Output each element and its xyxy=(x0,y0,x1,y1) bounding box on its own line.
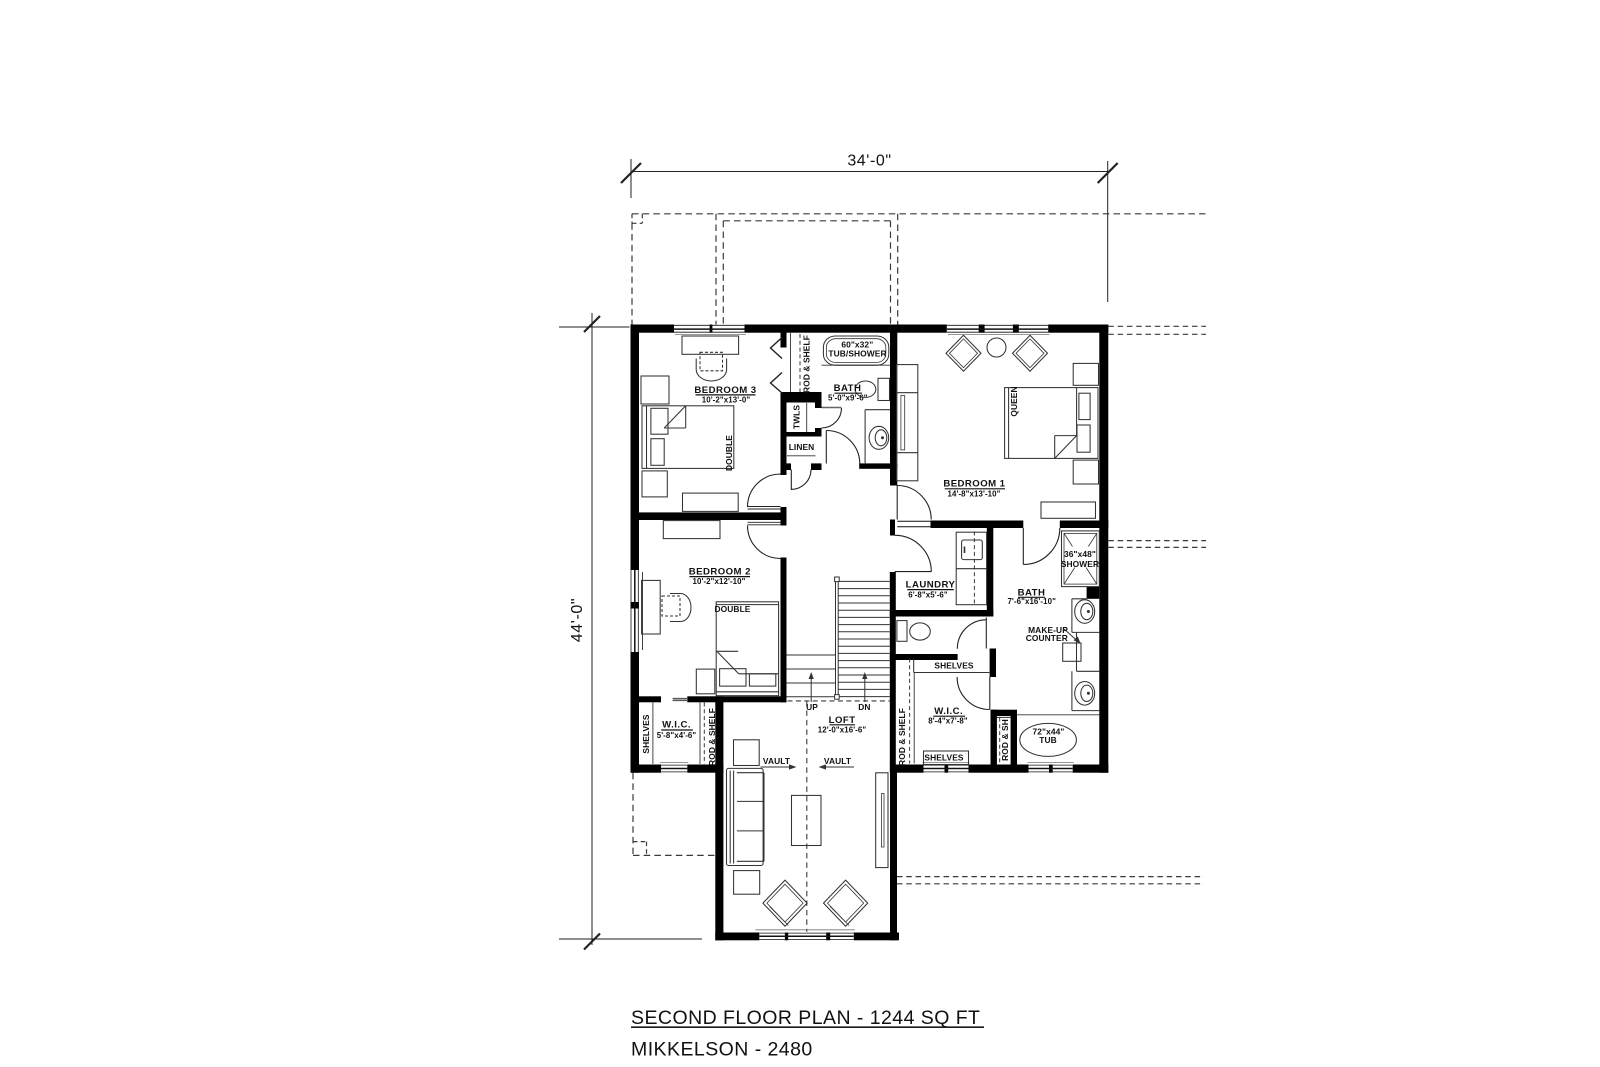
svg-text:DN: DN xyxy=(858,702,870,712)
svg-text:W.I.C.: W.I.C. xyxy=(662,720,691,731)
svg-text:SHELVES: SHELVES xyxy=(924,753,963,763)
svg-text:10'-2"x12'-10": 10'-2"x12'-10" xyxy=(693,577,746,586)
svg-text:5'-0"x9'-6": 5'-0"x9'-6" xyxy=(828,394,868,403)
svg-text:SHOWER: SHOWER xyxy=(1061,559,1099,569)
svg-text:TWLS: TWLS xyxy=(792,405,802,429)
svg-text:VAULT: VAULT xyxy=(763,756,791,766)
svg-text:UP: UP xyxy=(806,702,818,712)
svg-text:DOUBLE: DOUBLE xyxy=(715,604,751,614)
svg-text:ROD & SHELF: ROD & SHELF xyxy=(802,335,812,393)
svg-text:TUB/SHOWER: TUB/SHOWER xyxy=(828,349,886,359)
svg-text:VAULT: VAULT xyxy=(824,756,852,766)
svg-text:36"x48": 36"x48" xyxy=(1064,549,1096,559)
svg-text:10'-2"x13'-0": 10'-2"x13'-0" xyxy=(702,396,751,405)
svg-text:ROD & SHELF: ROD & SHELF xyxy=(707,708,717,766)
svg-text:SHELVES: SHELVES xyxy=(934,660,973,670)
svg-text:8'-4"x7'-8": 8'-4"x7'-8" xyxy=(928,716,968,725)
svg-text:LAUNDRY: LAUNDRY xyxy=(906,580,956,591)
svg-text:COUNTER: COUNTER xyxy=(1026,633,1068,643)
svg-text:34'-0": 34'-0" xyxy=(847,153,891,170)
svg-text:LINEN: LINEN xyxy=(789,442,815,452)
svg-text:14'-8"x13'-10": 14'-8"x13'-10" xyxy=(948,490,1001,499)
svg-text:QUEEN: QUEEN xyxy=(1009,386,1019,416)
svg-text:TUB: TUB xyxy=(1039,735,1057,745)
svg-text:SECOND FLOOR PLAN - 1244 SQ FT: SECOND FLOOR PLAN - 1244 SQ FT xyxy=(631,1007,980,1029)
svg-text:6'-8"x5'-6": 6'-8"x5'-6" xyxy=(908,591,948,600)
svg-text:ROD & SHELF: ROD & SHELF xyxy=(897,708,907,766)
svg-text:5'-8"x4'-6": 5'-8"x4'-6" xyxy=(657,731,697,740)
svg-text:BEDROOM 3: BEDROOM 3 xyxy=(694,385,756,396)
svg-text:7'-6"x16'-10": 7'-6"x16'-10" xyxy=(1007,597,1056,606)
svg-text:BEDROOM 1: BEDROOM 1 xyxy=(943,479,1005,490)
svg-text:44'-0": 44'-0" xyxy=(569,598,586,642)
svg-text:DOUBLE: DOUBLE xyxy=(724,435,734,471)
svg-text:LOFT: LOFT xyxy=(829,715,856,726)
svg-text:ROD & SH: ROD & SH xyxy=(1000,719,1010,761)
svg-text:12'-0"x16'-6": 12'-0"x16'-6" xyxy=(818,725,867,734)
svg-text:BATH: BATH xyxy=(834,383,862,394)
svg-text:MIKKELSON - 2480: MIKKELSON - 2480 xyxy=(631,1039,813,1061)
svg-text:SHELVES: SHELVES xyxy=(641,714,651,753)
